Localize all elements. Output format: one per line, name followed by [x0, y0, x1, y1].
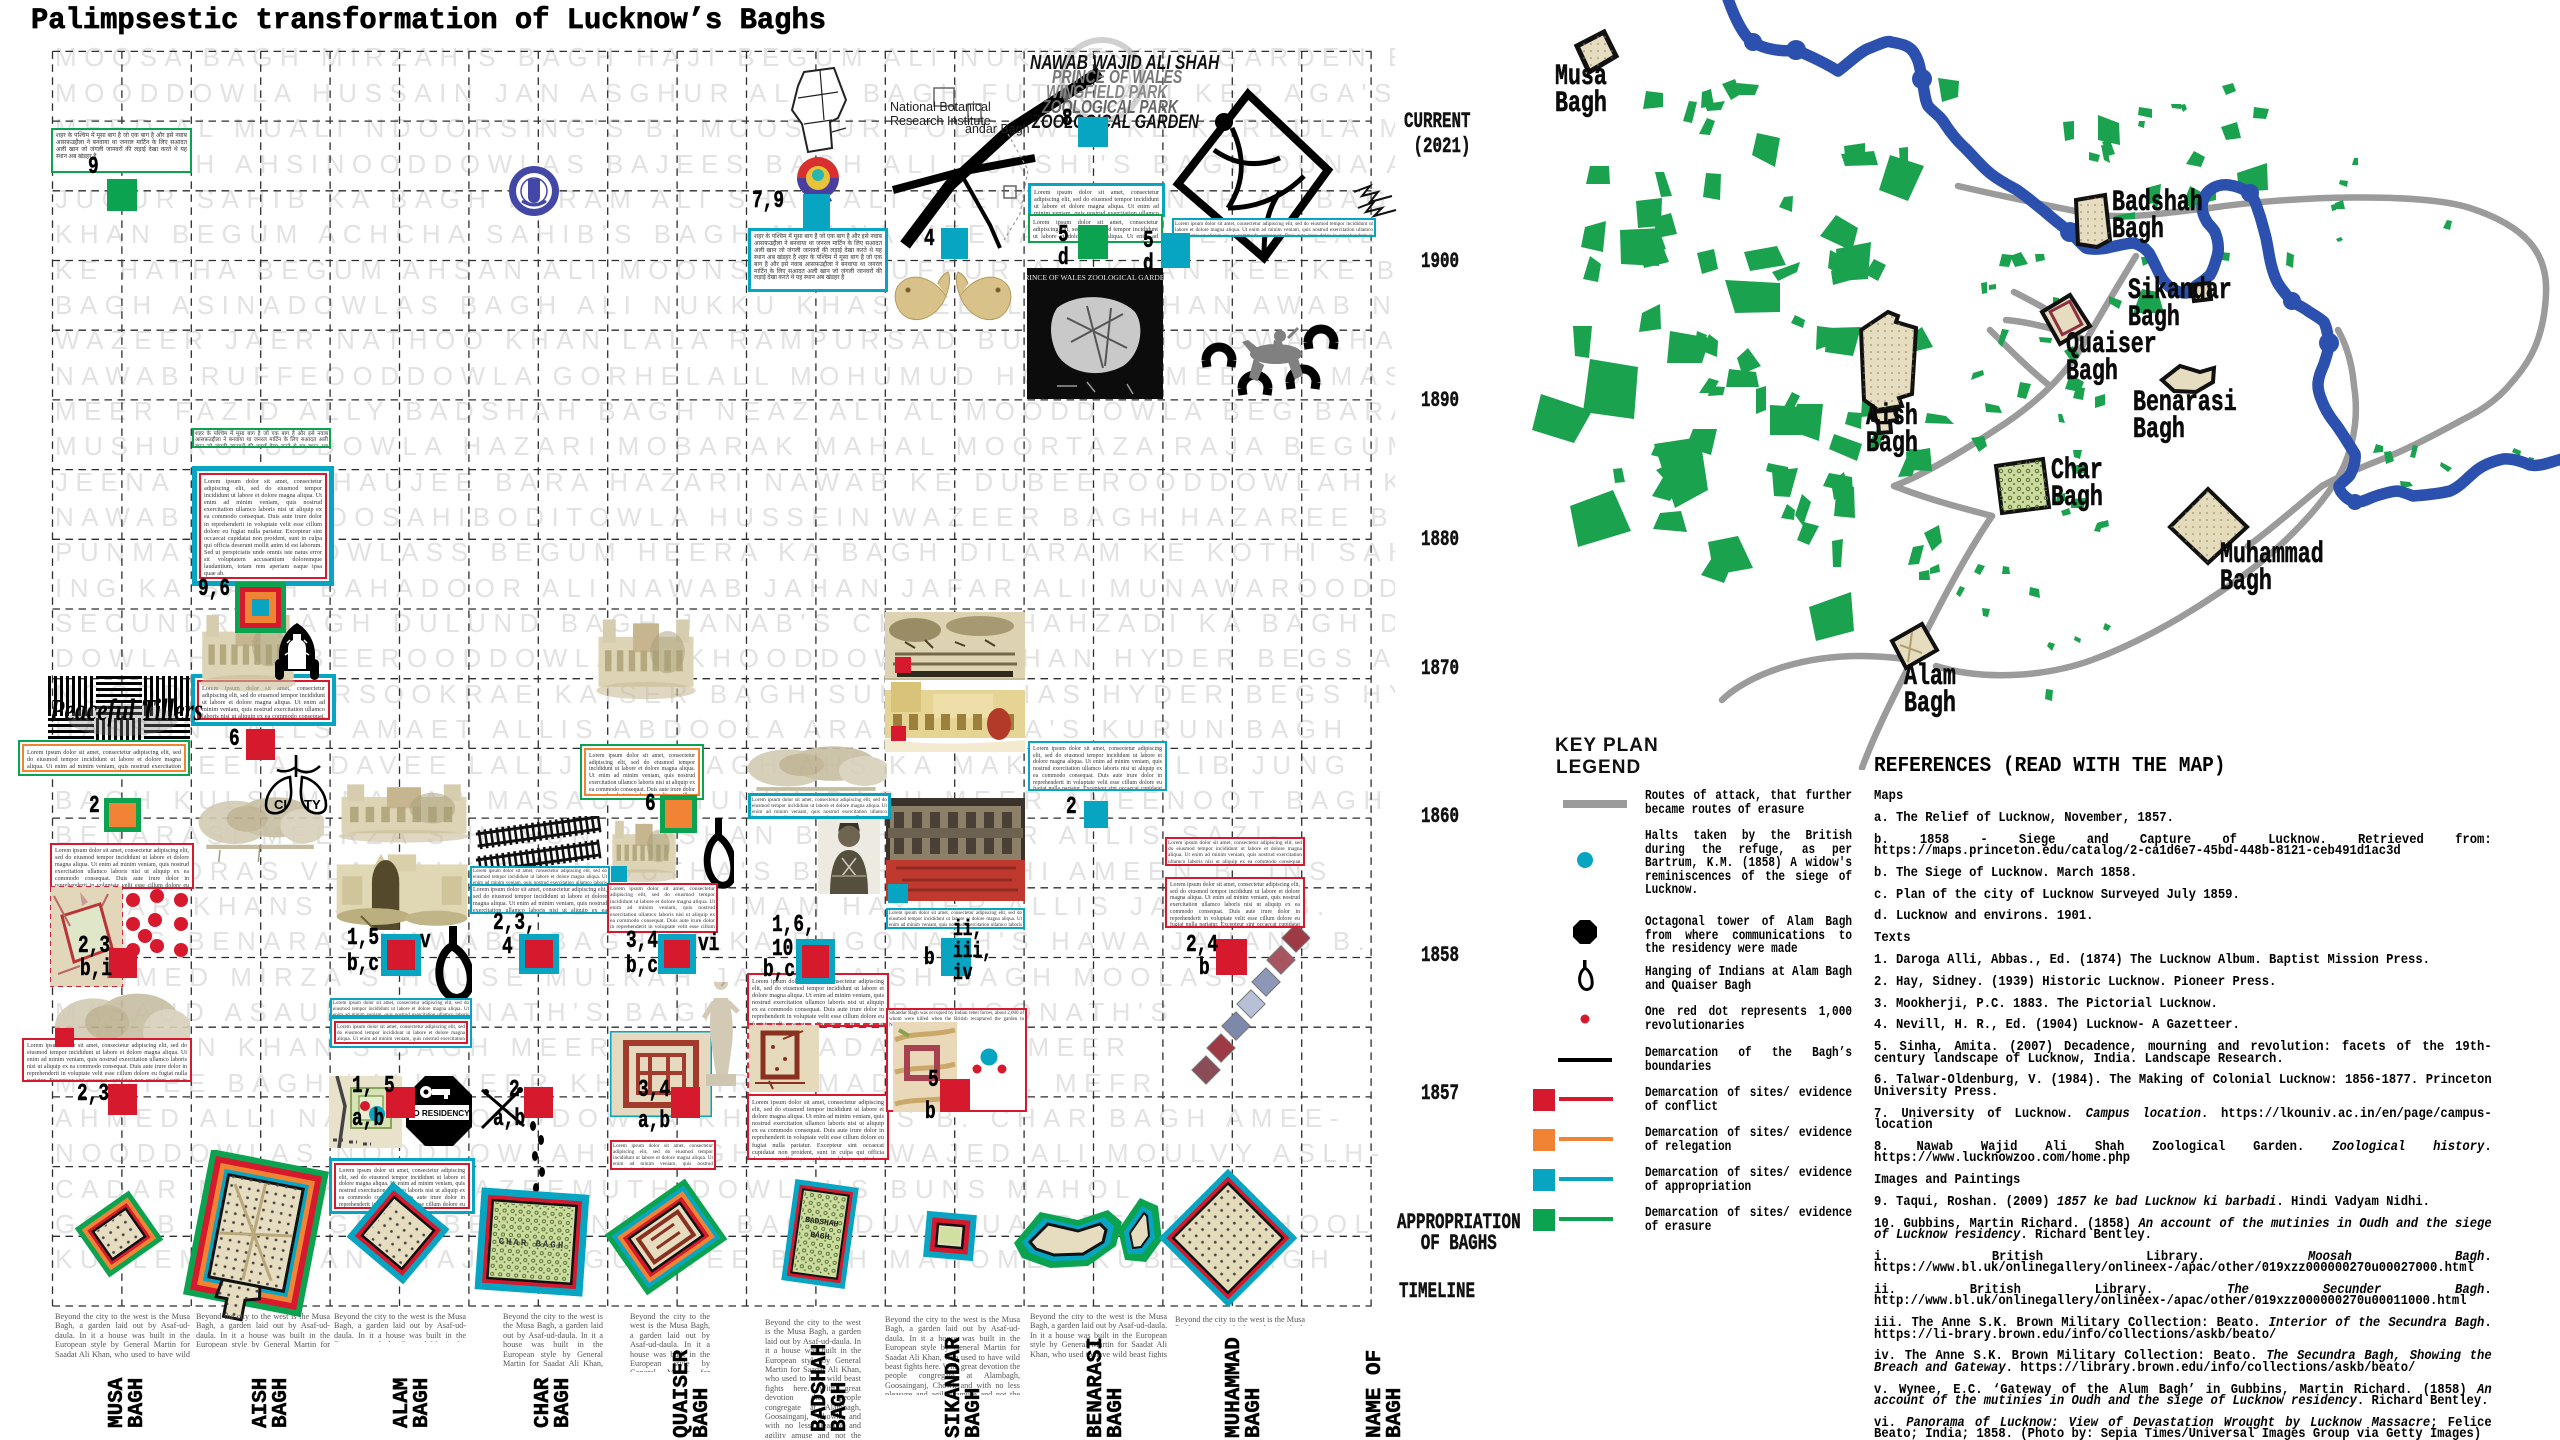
svg-text:TO RESIDENCY: TO RESIDENCY [408, 1109, 470, 1118]
svg-text:CI: CI [274, 797, 287, 812]
svg-text:TY: TY [304, 797, 321, 812]
